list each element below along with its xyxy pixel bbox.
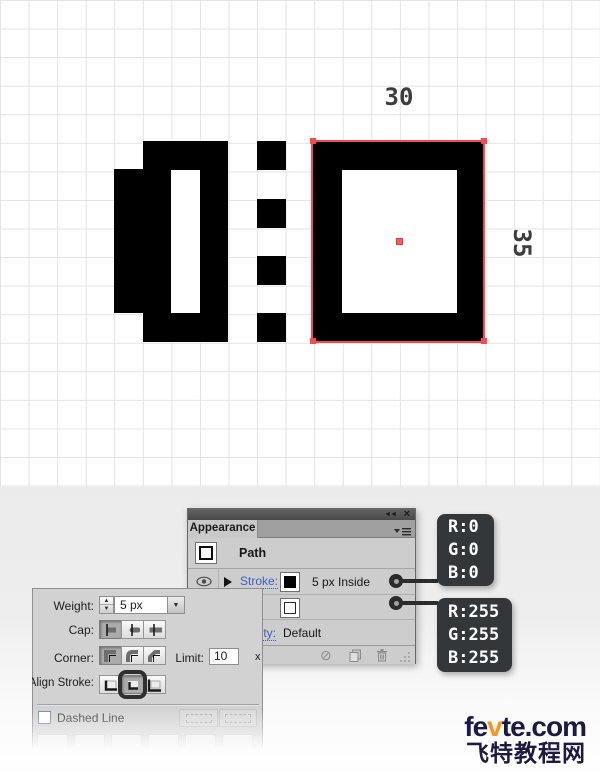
selection-handle-bl[interactable] (310, 338, 316, 344)
weight-value-field[interactable]: 5 px (114, 596, 168, 614)
resize-grip-icon[interactable] (400, 651, 410, 665)
cap-label: Cap: (69, 623, 94, 637)
collapse-panel-icon[interactable]: ◄◄ (384, 509, 396, 520)
width-dimension-label: 30 (374, 83, 424, 111)
dash-square-1[interactable] (257, 141, 286, 170)
rgb-line: B:0 (448, 562, 494, 585)
tutorial-screenshot: 30 35 ◄◄ × Appearance Path (0, 0, 600, 780)
expand-triangle-icon[interactable] (224, 577, 232, 587)
selection-handle-tr[interactable] (481, 138, 487, 144)
dashed-line-checkbox[interactable] (38, 711, 51, 724)
appearance-row-path[interactable]: Path (188, 538, 415, 568)
rgb-line: G:0 (448, 539, 494, 562)
connector-dot-stroke (389, 574, 403, 588)
align-stroke-button-group (99, 675, 165, 694)
logo-v: v (487, 711, 502, 742)
selection-center-point[interactable] (396, 238, 403, 245)
stroke-color-swatch[interactable] (280, 572, 300, 592)
watermark: fevte.com 飞特教程网 (464, 713, 586, 766)
stepper-up-icon[interactable]: ▲ (100, 597, 113, 605)
dash-square-4[interactable] (257, 313, 286, 342)
logo-te-com: te.com (502, 711, 586, 742)
weight-dropdown-icon[interactable]: ▼ (168, 596, 185, 614)
weight-label: Weight: (54, 599, 94, 613)
stroke-panel-divider (37, 704, 259, 706)
appearance-titlebar: ◄◄ × (188, 509, 415, 520)
dash-preset-button-1 (179, 709, 218, 727)
corner-round-button[interactable] (121, 646, 144, 665)
cap-butt-button[interactable] (99, 620, 122, 639)
stroke-link[interactable]: Stroke: (240, 574, 278, 589)
limit-value-field[interactable]: 10 (209, 648, 239, 665)
watermark-chinese-text: 飞特教程网 (464, 743, 586, 766)
close-panel-icon[interactable]: × (404, 509, 410, 519)
left-shape-block[interactable] (114, 169, 143, 313)
logo-fe: fe (464, 711, 487, 742)
cap-round-button[interactable] (121, 620, 144, 639)
rgb-callout-white: R:255 G:255 B:255 (437, 598, 512, 672)
tab-appearance[interactable]: Appearance (188, 520, 258, 538)
corner-button-group (99, 646, 165, 665)
dash-preset-button-2 (219, 709, 257, 727)
dash-square-2[interactable] (257, 199, 286, 228)
opacity-value: Default (283, 626, 321, 640)
selection-handle-tl[interactable] (310, 138, 316, 144)
connector-line-fill (400, 601, 438, 605)
duplicate-item-icon[interactable] (349, 649, 362, 665)
cap-projecting-button[interactable] (143, 620, 166, 639)
dashed-line-label: Dashed Line (57, 711, 124, 725)
connector-dot-fill (389, 596, 403, 610)
dash-gap-fields (37, 734, 253, 748)
align-center-button[interactable] (99, 675, 122, 694)
artboard-canvas[interactable]: 30 35 (0, 0, 600, 487)
stepper-down-icon[interactable]: ▼ (100, 605, 113, 613)
stroke-align-text: Inside (338, 575, 370, 589)
height-dimension-label: 35 (510, 223, 536, 263)
cap-button-group (99, 620, 165, 639)
rgb-line: R:0 (448, 516, 494, 539)
stroke-panel: Weight: ▲ ▼ 5 px ▼ Cap: Corner: (32, 588, 263, 750)
watermark-logo-text: fevte.com (464, 713, 586, 741)
appearance-tab-strip: Appearance (188, 520, 415, 538)
corner-miter-button[interactable] (99, 646, 122, 665)
fill-color-swatch[interactable] (280, 598, 300, 618)
align-outside-button[interactable] (143, 675, 166, 694)
weight-stepper[interactable]: ▲ ▼ (99, 596, 114, 614)
rgb-line: R:255 (448, 601, 512, 624)
path-preview-swatch (195, 542, 217, 564)
rgb-callout-black: R:0 G:0 B:0 (437, 514, 494, 586)
align-stroke-label: Align Stroke: (29, 677, 94, 689)
connector-line-stroke (400, 579, 438, 583)
rgb-line: B:255 (448, 647, 512, 670)
limit-unit: x (255, 651, 261, 663)
selection-handle-br[interactable] (481, 338, 487, 344)
limit-label: Limit: (175, 651, 204, 665)
align-inside-button[interactable] (121, 675, 144, 694)
left-shape-hole (171, 170, 200, 313)
dash-square-3[interactable] (257, 256, 286, 285)
delete-item-icon[interactable] (376, 648, 388, 665)
path-label: Path (239, 538, 266, 568)
corner-label: Corner: (54, 651, 94, 665)
rgb-line: G:255 (448, 624, 512, 647)
clear-appearance-icon[interactable]: ⊘ (320, 648, 332, 662)
panel-menu-icon[interactable] (394, 525, 411, 539)
corner-bevel-button[interactable] (143, 646, 166, 665)
stroke-weight-text: 5 px (312, 575, 335, 589)
